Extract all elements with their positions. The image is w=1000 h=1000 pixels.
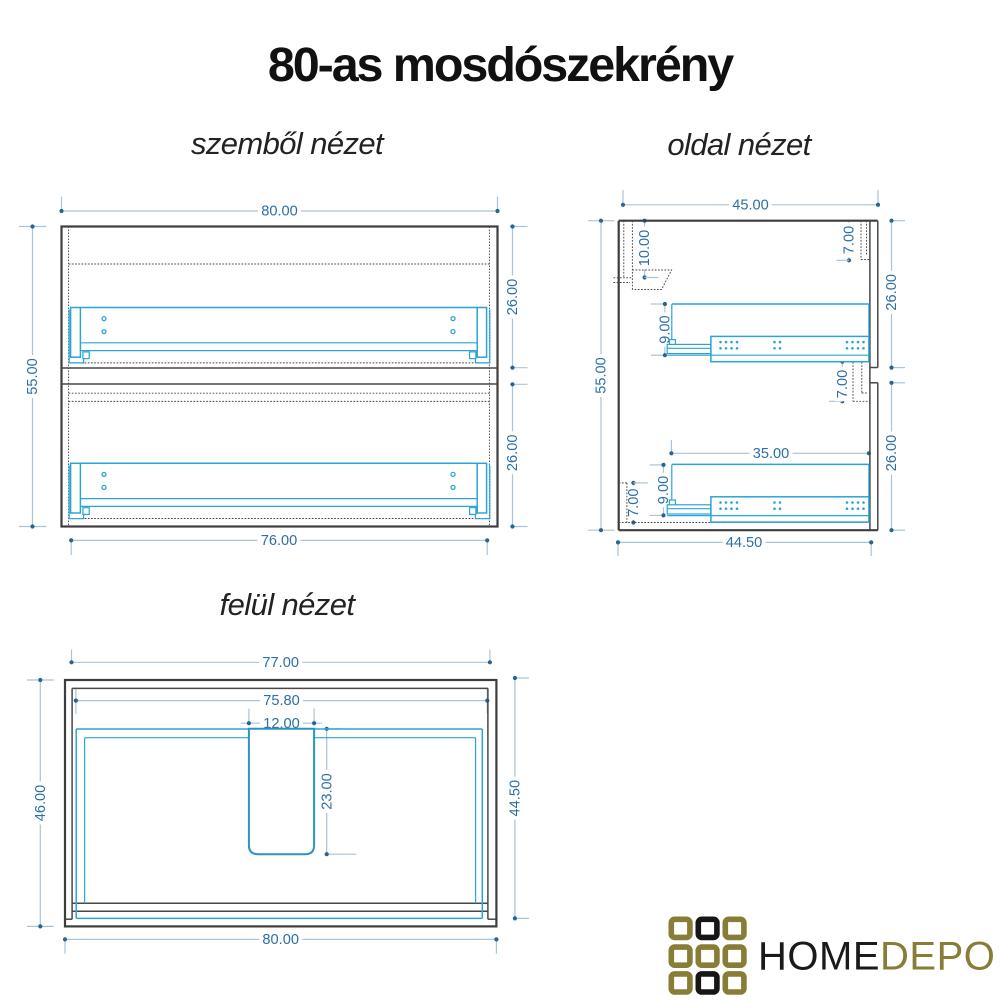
svg-text:10.00: 10.00 — [637, 230, 653, 267]
svg-text:76.00: 76.00 — [261, 533, 298, 549]
svg-text:75.80: 75.80 — [263, 693, 300, 709]
svg-text:7.00: 7.00 — [842, 226, 858, 254]
svg-text:44.50: 44.50 — [508, 780, 524, 817]
svg-text:45.00: 45.00 — [732, 197, 769, 213]
svg-text:26.00: 26.00 — [505, 435, 521, 472]
svg-text:77.00: 77.00 — [262, 655, 299, 671]
svg-text:HOMEDEPO: HOMEDEPO — [758, 935, 995, 979]
svg-text:26.00: 26.00 — [884, 435, 900, 472]
svg-text:80.00: 80.00 — [262, 932, 299, 948]
svg-text:7.00: 7.00 — [835, 370, 851, 398]
svg-text:44.50: 44.50 — [726, 535, 763, 551]
svg-text:55.00: 55.00 — [594, 357, 610, 394]
svg-text:46.00: 46.00 — [33, 785, 49, 822]
svg-text:80.00: 80.00 — [261, 204, 298, 220]
svg-text:26.00: 26.00 — [884, 274, 900, 311]
svg-text:35.00: 35.00 — [753, 446, 790, 462]
svg-text:55.00: 55.00 — [25, 358, 41, 395]
svg-text:7.00: 7.00 — [626, 488, 642, 516]
svg-text:23.00: 23.00 — [319, 773, 335, 810]
svg-text:26.00: 26.00 — [505, 279, 521, 316]
